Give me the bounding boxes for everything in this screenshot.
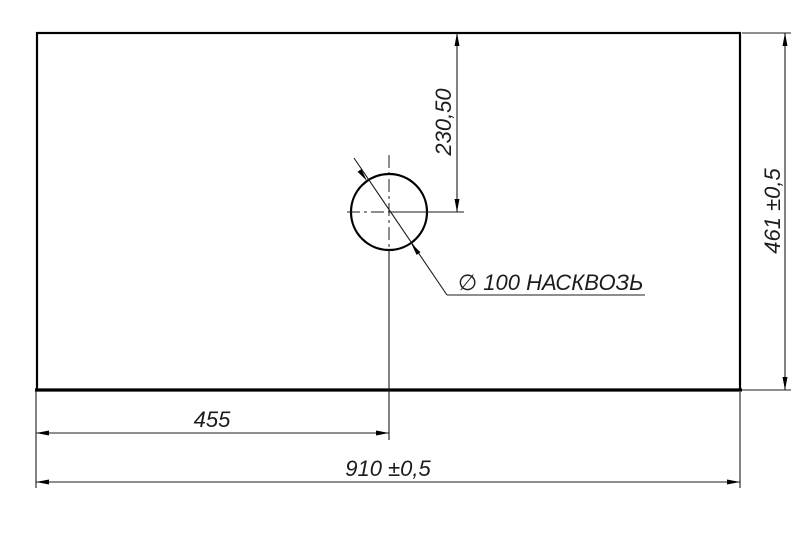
dimension-label-panel-width: 910 ±0,5 (345, 456, 431, 481)
dimension-label-panel-height: 461 ±0,5 (760, 168, 785, 254)
arrow-right-icon (376, 431, 389, 436)
arrow-right-icon (727, 480, 740, 485)
arrow-left-icon (36, 431, 49, 436)
technical-drawing: 230,50 ∅ 100 НАСКВОЗЬ 455 910 ±0,5 461 ±… (0, 0, 800, 548)
drawing-canvas: 230,50 ∅ 100 НАСКВОЗЬ 455 910 ±0,5 461 ±… (0, 0, 800, 548)
arrow-down-icon (455, 199, 460, 212)
leader-line (354, 158, 447, 295)
dimension-label-hole-from-left: 455 (194, 407, 231, 432)
arrow-up-icon (455, 33, 460, 46)
arrow-left-icon (36, 480, 49, 485)
arrow-up-icon (783, 33, 788, 46)
dimension-label-hole-from-top: 230,50 (431, 88, 456, 157)
arrow-down-icon (783, 377, 788, 390)
hole-callout-label: ∅ 100 НАСКВОЗЬ (458, 270, 643, 295)
arrow-diagonal-icon (411, 243, 420, 255)
